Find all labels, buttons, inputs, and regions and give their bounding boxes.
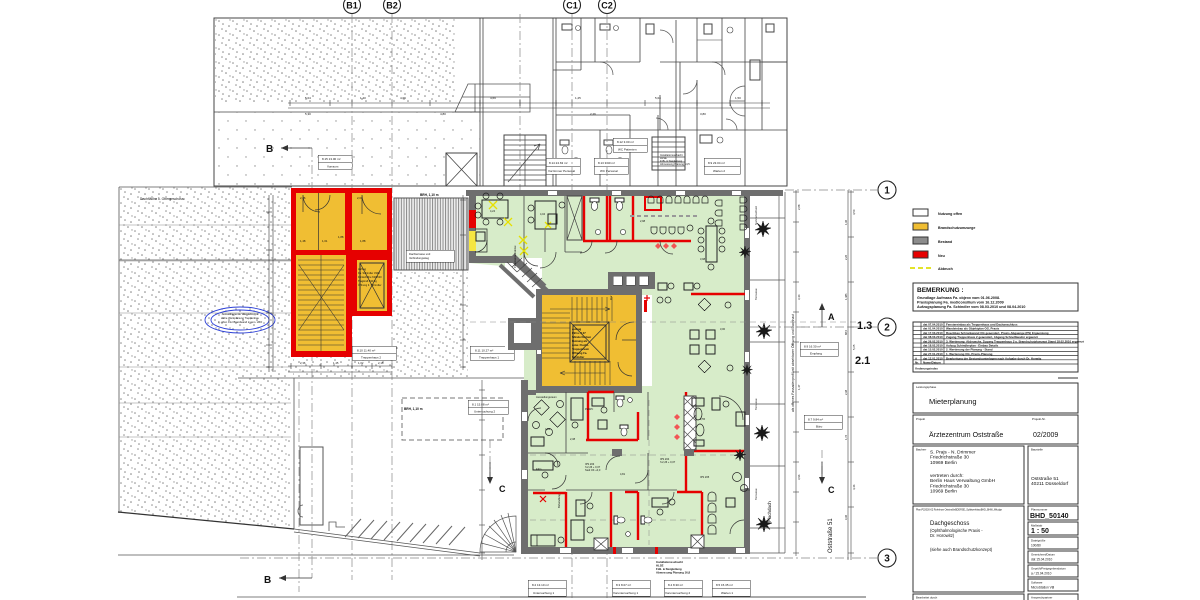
svg-text:02/2009: 02/2009	[1033, 432, 1058, 439]
svg-text:Öffnung Fa.: Öffnung Fa.	[572, 351, 587, 355]
svg-text:siehe Werkplanung Treppenbau: siehe Werkplanung Treppenbau	[221, 316, 260, 320]
svg-text:2,88: 2,88	[797, 204, 801, 210]
svg-text:Förderhöhe 630/630: Förderhöhe 630/630	[358, 275, 382, 279]
svg-text:Berlin Haus Verwaltung GmbH: Berlin Haus Verwaltung GmbH	[930, 478, 996, 484]
svg-text:Untersuchung 1: Untersuchung 1	[533, 591, 555, 595]
svg-text:100/80: 100/80	[1031, 544, 1041, 548]
svg-text:IPS 205: IPS 205	[700, 475, 710, 479]
svg-text:3,96: 3,96	[797, 474, 801, 480]
svg-text:Büro: Büro	[816, 425, 823, 429]
svg-text:Neu: Neu	[938, 254, 945, 258]
svg-text:Warten 1: Warten 1	[721, 591, 733, 595]
svg-text:Brandschutzumzuege: Brandschutzumzuege	[938, 226, 975, 230]
svg-text:Bearbeitung der Bestandsunterl: Bearbeitung der Bestandsunterlagen nach …	[946, 356, 1042, 360]
svg-text:1,25: 1,25	[575, 96, 581, 100]
svg-text:Aufzugsplanung Fa. Schindler v: Aufzugsplanung Fa. Schindler vom 08.03.2…	[917, 305, 1025, 309]
svg-text:1,76: 1,76	[844, 434, 848, 440]
svg-text:Treppenhaus 2: Treppenhaus 2	[361, 356, 381, 360]
svg-text:2: 2	[884, 323, 890, 334]
svg-text:Vorraum: Vorraum	[327, 165, 339, 169]
svg-text:2,26: 2,26	[300, 196, 306, 200]
svg-text:Voruntersuchung 1: Voruntersuchung 1	[613, 591, 639, 595]
svg-text:Steil OK +0,0: Steil OK +0,0	[585, 468, 601, 472]
svg-text:Oststraße 51: Oststraße 51	[828, 518, 834, 553]
svg-text:4,24: 4,24	[490, 209, 496, 213]
svg-text:als offenes Fassadenprofil mit: als offenes Fassadenprofil mit absehbare…	[791, 314, 795, 412]
svg-text:Ärztezentrum Oststraße: Ärztezentrum Oststraße	[929, 431, 1003, 439]
svg-text:Änderungsindex: Änderungsindex	[915, 367, 938, 371]
svg-text:Name/Datum: Name/Datum	[923, 361, 941, 365]
svg-text:8.5 15.35 m²: 8.5 15.35 m²	[716, 583, 733, 587]
svg-text:Terrasse: Terrasse	[754, 488, 758, 500]
svg-text:B2: B2	[386, 1, 398, 11]
svg-text:Plannummer: Plannummer	[1031, 508, 1047, 512]
svg-text:Baustelle: Baustelle	[1031, 448, 1043, 452]
svg-text:Ansprechpartner: Ansprechpartner	[1031, 596, 1052, 600]
svg-text:2,01: 2,01	[357, 196, 363, 200]
svg-text:8.9 16.30 m²: 8.9 16.30 m²	[804, 345, 821, 349]
svg-text:88,5: 88,5	[844, 329, 848, 335]
svg-text:5,65: 5,65	[852, 344, 856, 350]
svg-text:3: 3	[884, 554, 890, 565]
svg-text:4,50: 4,50	[852, 209, 856, 215]
svg-text:Ausstellungsraum: Ausstellungsraum	[536, 395, 557, 399]
svg-text:Aussenliegende Wendeltreppe: Aussenliegende Wendeltreppe	[222, 312, 259, 316]
svg-text:dat 27.01.2010: dat 27.01.2010	[923, 352, 943, 356]
svg-text:Grundlage Aufmass Fa. objexx v: Grundlage Aufmass Fa. objexx vom 01.06.2…	[917, 296, 1000, 300]
svg-text:Plan:P32030-02 Rohrleuw Oststr: Plan:P32030-02 Rohrleuw OststraßeBDDRSE_…	[916, 509, 1003, 512]
svg-text:notw. Flucht-: notw. Flucht-	[572, 343, 589, 347]
svg-text:1,36: 1,36	[844, 219, 848, 225]
svg-text:Warten 2: Warten 2	[713, 169, 725, 173]
svg-text:Geprüft/Freigegebendatum: Geprüft/Freigegebendatum	[1031, 567, 1066, 571]
svg-text:Friedrichstraße 30: Friedrichstraße 30	[930, 483, 969, 489]
svg-text:(siehe auch Brandschutzkonzept: (siehe auch Brandschutzkonzept)	[930, 547, 993, 552]
svg-text:C: C	[499, 484, 506, 494]
svg-text:8.12 3.00 m²: 8.12 3.00 m²	[617, 140, 634, 144]
svg-text:Verbindungssteg: Verbindungssteg	[409, 256, 430, 260]
svg-text:2,38: 2,38	[570, 437, 576, 441]
svg-text:Dateigröße: Dateigröße	[1031, 539, 1046, 543]
svg-text:Untersuchung 2: Untersuchung 2	[474, 410, 496, 414]
svg-text:Öffnung lt. Schindler: Öffnung lt. Schindler	[358, 283, 382, 287]
svg-text:1,02: 1,02	[358, 361, 364, 365]
svg-text:3,00: 3,00	[720, 327, 726, 331]
svg-text:Maßstab: Maßstab	[1031, 524, 1043, 528]
svg-text:4,81: 4,81	[620, 472, 626, 476]
svg-text:a / 15.04.2010: a / 15.04.2010	[1031, 572, 1052, 576]
svg-text:1: 1	[884, 186, 890, 197]
svg-text:EKG: EKG	[536, 467, 541, 471]
svg-text:8.1 15.88 m²: 8.1 15.88 m²	[472, 403, 489, 407]
svg-text:Patientenaufnahme: Patientenaufnahme	[513, 245, 517, 268]
svg-text:Tragkraft 630 kg: Tragkraft 630 kg	[358, 279, 377, 283]
svg-text:Behandlung: Behandlung	[557, 494, 561, 508]
svg-text:1,45: 1,45	[333, 361, 339, 365]
svg-text:BEMERKUNG :: BEMERKUNG :	[917, 287, 964, 294]
svg-text:Nutzung als: Nutzung als	[572, 339, 588, 343]
svg-text:4,80: 4,80	[440, 112, 446, 116]
svg-text:Oststraße 51: Oststraße 51	[1031, 476, 1059, 482]
svg-text:vertreten durch:: vertreten durch:	[930, 473, 964, 479]
svg-text:h:2,26 + 0,07: h:2,26 + 0,07	[660, 460, 676, 464]
svg-text:WC Patienten: WC Patienten	[618, 148, 637, 152]
svg-text:2.1: 2.1	[855, 355, 870, 367]
svg-text:lg. Abst. Flur Brandwand 2 gem: lg. Abst. Flur Brandwand 2 gem. LBO	[218, 320, 262, 324]
svg-text:S. Prajs - N. Drimmer: S. Prajs - N. Drimmer	[930, 450, 976, 456]
svg-text:1. Wertierung OG, Praxis-Planu: 1. Wertierung OG, Praxis-Planung	[946, 352, 993, 356]
svg-text:5,04: 5,04	[655, 96, 661, 100]
svg-text:Bauherr: Bauherr	[916, 448, 926, 452]
svg-text:2,26: 2,26	[590, 112, 596, 116]
svg-text:Abmessung Planung 16,8: Abmessung Planung 16,8	[656, 571, 690, 575]
svg-text:Fa. Schindler 3300: Fa. Schindler 3300	[358, 271, 380, 275]
svg-text:3,36: 3,36	[844, 514, 848, 520]
svg-text:C2: C2	[601, 1, 613, 11]
svg-text:Dachgeschoss: Dachgeschoss	[930, 521, 969, 527]
svg-text:Mieterplanung: Mieterplanung	[929, 397, 977, 406]
svg-text:Bearbeitet durch: Bearbeitet durch	[916, 596, 938, 600]
svg-text:F90 u. 2,07: F90 u. 2,07	[572, 331, 586, 335]
svg-text:1,485: 1,485	[844, 293, 848, 300]
svg-text:4,04: 4,04	[540, 212, 546, 216]
svg-text:B: B	[266, 144, 273, 155]
svg-text:2,16: 2,16	[378, 361, 384, 365]
svg-text:Projekt-Nr.: Projekt-Nr.	[1032, 417, 1046, 421]
svg-text:1,50: 1,50	[735, 96, 741, 100]
svg-text:C1: C1	[566, 1, 578, 11]
svg-text:BRH, 1,10 m: BRH, 1,10 m	[404, 407, 423, 411]
svg-text:4,69: 4,69	[490, 96, 496, 100]
svg-text:PatWC: PatWC	[585, 407, 593, 411]
svg-text:1,40: 1,40	[360, 96, 366, 100]
svg-text:A: A	[828, 312, 835, 322]
svg-text:1,01: 1,01	[322, 239, 328, 243]
svg-text:Voruntersuchung 2: Voruntersuchung 2	[665, 591, 691, 595]
svg-text:C: C	[828, 485, 835, 495]
svg-text:Praxisplanung Fa. mediconsiliu: Praxisplanung Fa. mediconsilium vom 16.1…	[917, 301, 1004, 305]
svg-text:8.3 8.07 m²: 8.3 8.07 m²	[616, 583, 631, 587]
svg-text:1.3: 1.3	[857, 320, 872, 332]
svg-text:Terrasse: Terrasse	[754, 288, 758, 300]
svg-text:2,98: 2,98	[640, 219, 646, 223]
svg-text:Gezeichnet/Datum: Gezeichnet/Datum	[1031, 553, 1056, 557]
svg-text:10969 Berlin: 10969 Berlin	[930, 489, 957, 495]
svg-text:Abbruch: Abbruch	[938, 267, 953, 271]
svg-text:Software: Software	[1031, 581, 1043, 585]
svg-text:Leistungsphase: Leistungsphase	[916, 385, 937, 389]
svg-text:1,47: 1,47	[797, 384, 801, 390]
svg-text:Flur: Flur	[609, 295, 613, 300]
svg-text:Dachfläche 5. Obergeschoss: Dachfläche 5. Obergeschoss	[140, 197, 184, 201]
svg-text:8.7 9.84 m²: 8.7 9.84 m²	[808, 418, 823, 422]
svg-text:3,98: 3,98	[700, 257, 706, 261]
svg-text:8.15 13.00 m²: 8.15 13.00 m²	[322, 157, 341, 161]
svg-text:8.14 24.63 m²: 8.14 24.63 m²	[549, 161, 568, 165]
svg-text:Aufzug: Aufzug	[358, 267, 367, 271]
svg-text:1,88: 1,88	[360, 239, 366, 243]
svg-text:Dr. Horowitz): Dr. Horowitz)	[930, 533, 955, 538]
svg-text:4,91: 4,91	[545, 427, 551, 431]
svg-text:8.10 11.40 m²: 8.10 11.40 m²	[357, 349, 375, 353]
svg-text:2,55: 2,55	[700, 417, 706, 421]
svg-text:MicroStation V8i: MicroStation V8i	[1031, 586, 1054, 590]
svg-text:B1: B1	[346, 1, 358, 11]
svg-text:Schindler: Schindler	[572, 355, 584, 359]
svg-text:8.2 13.10 m²: 8.2 13.10 m²	[532, 583, 549, 587]
svg-text:Flachdach: Flachdach	[767, 501, 772, 522]
svg-text:2,26: 2,26	[844, 254, 848, 260]
svg-text:8.11 10.27 m²: 8.11 10.27 m²	[475, 349, 493, 353]
svg-text:5,30: 5,30	[305, 112, 311, 116]
svg-text:8.4 8.30 m²: 8.4 8.30 m²	[668, 583, 683, 587]
svg-text:Treppenraum: Treppenraum	[572, 347, 590, 351]
svg-text:Wände Decken: Wände Decken	[572, 335, 591, 339]
svg-text:Nutzung offen: Nutzung offen	[938, 212, 962, 216]
svg-text:dat 15.04.2010: dat 15.04.2010	[1031, 558, 1052, 562]
svg-text:Friedrichstraße 30: Friedrichstraße 30	[930, 455, 969, 461]
svg-text:1 : 50: 1 : 50	[1031, 528, 1049, 535]
svg-text:1,48: 1,48	[300, 239, 306, 243]
svg-text:2,36: 2,36	[300, 361, 306, 365]
svg-text:8.9 23.04 m²: 8.9 23.04 m²	[708, 161, 725, 165]
svg-text:Dachterrasse und: Dachterrasse und	[409, 252, 431, 256]
svg-text:4,09: 4,09	[400, 96, 406, 100]
svg-text:3,80: 3,80	[700, 112, 706, 116]
svg-text:Empfang: Empfang	[810, 352, 822, 356]
svg-text:BRH, 1,10 m: BRH, 1,10 m	[420, 193, 439, 197]
svg-text:5,04: 5,04	[305, 96, 311, 100]
svg-text:40211 Düsseldorf: 40211 Düsseldorf	[1031, 481, 1069, 487]
svg-text:4,46: 4,46	[852, 484, 856, 490]
svg-text:WC Personal: WC Personal	[600, 169, 618, 173]
svg-text:Treppenhaus 1: Treppenhaus 1	[479, 356, 499, 360]
svg-text:Abmessung Planung 14,5: Abmessung Planung 14,5	[660, 162, 690, 166]
svg-text:Vorzimmer Personal: Vorzimmer Personal	[548, 169, 575, 173]
svg-text:8.13 3.40 m²: 8.13 3.40 m²	[598, 161, 615, 165]
svg-text:BHD_50140: BHD_50140	[1030, 513, 1069, 520]
svg-text:B: B	[264, 575, 271, 586]
svg-text:Projekt: Projekt	[916, 417, 925, 421]
svg-text:2,38: 2,38	[844, 389, 848, 395]
svg-text:Bestand: Bestand	[938, 240, 952, 244]
svg-text:Sonnenschutz: Sonnenschutz	[754, 205, 758, 225]
svg-text:Aufzug: Aufzug	[572, 327, 581, 331]
svg-text:10969 Berlin: 10969 Berlin	[930, 460, 957, 466]
svg-text:3,44: 3,44	[797, 294, 801, 300]
svg-text:Terrasse: Terrasse	[754, 398, 758, 410]
svg-text:Nr.: Nr.	[915, 361, 919, 365]
svg-text:1,88: 1,88	[338, 235, 344, 239]
